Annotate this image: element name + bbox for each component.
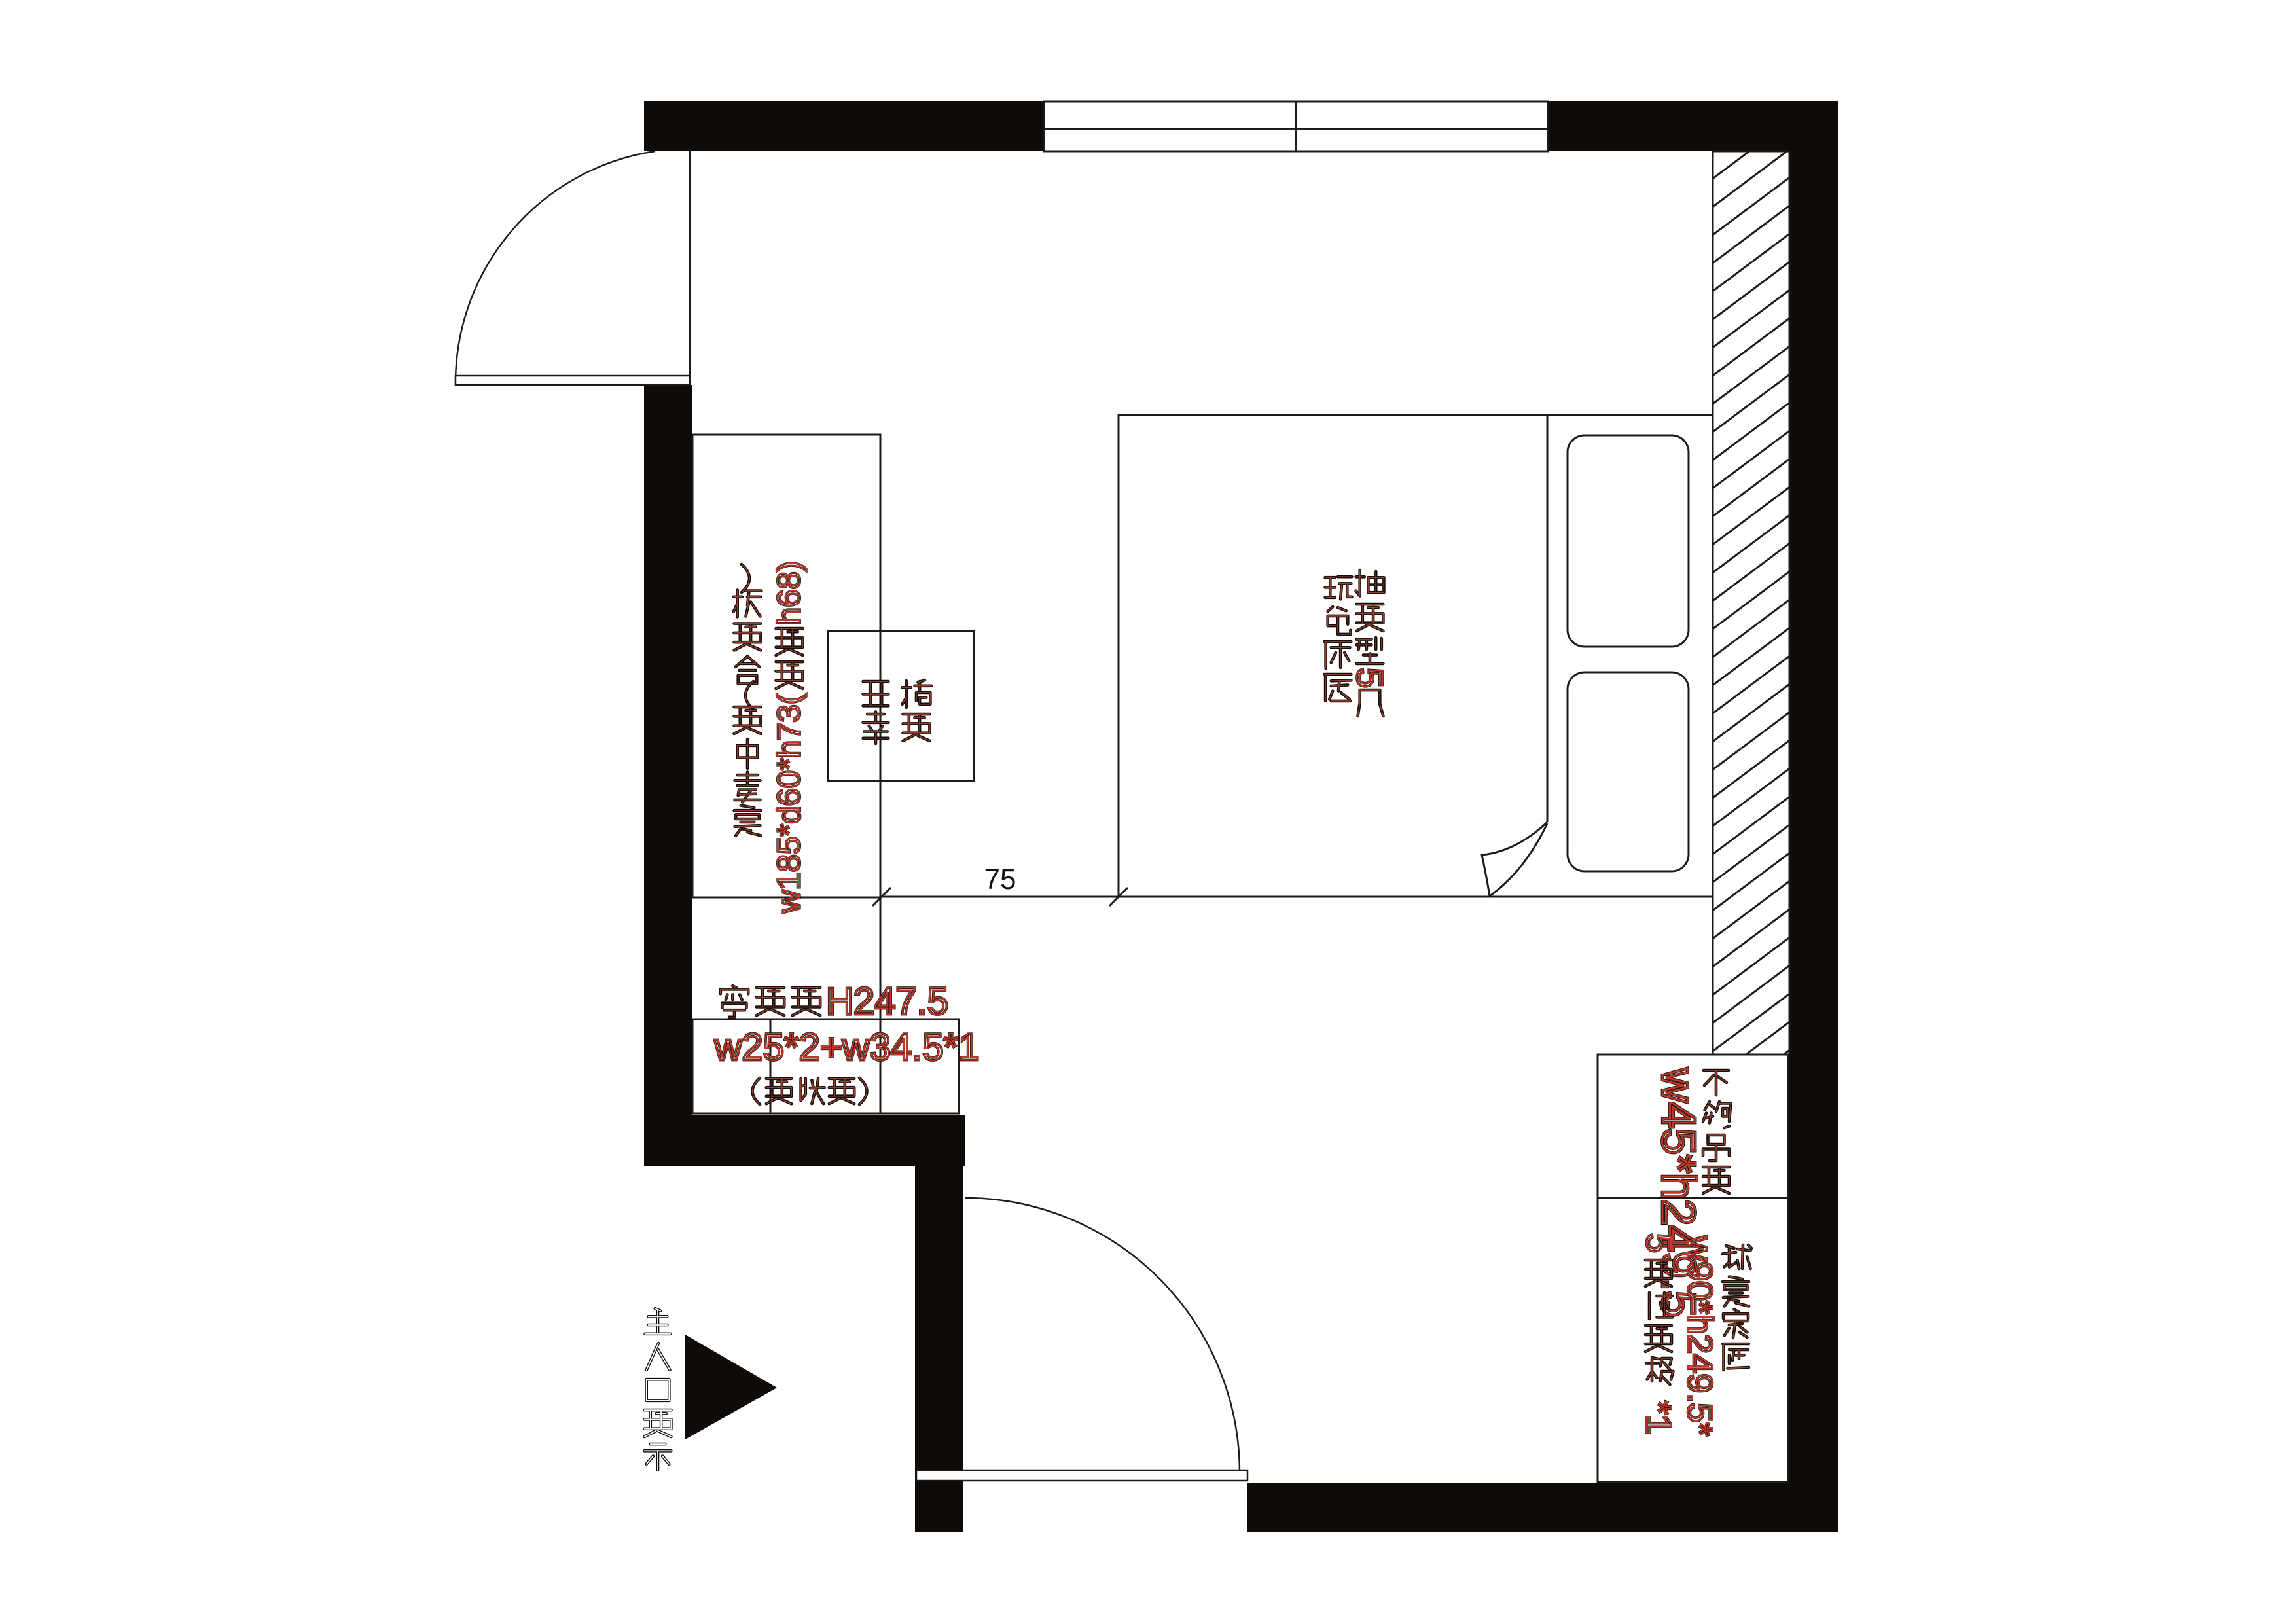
svg-text:w185*d60*h73(: w185*d60*h73( [772, 693, 807, 914]
svg-text:w25*2+w34.5*1: w25*2+w34.5*1 [714, 1026, 980, 1069]
svg-text:5: 5 [1350, 668, 1391, 688]
svg-text:w90*h249.5*: w90*h249.5* [1680, 1235, 1719, 1436]
svg-text:5: 5 [1639, 1233, 1678, 1253]
svg-text:*1: *1 [1639, 1401, 1678, 1434]
svg-text:H247.5: H247.5 [826, 981, 948, 1023]
svg-text:h68): h68) [772, 561, 807, 625]
svg-text:75: 75 [984, 863, 1016, 895]
